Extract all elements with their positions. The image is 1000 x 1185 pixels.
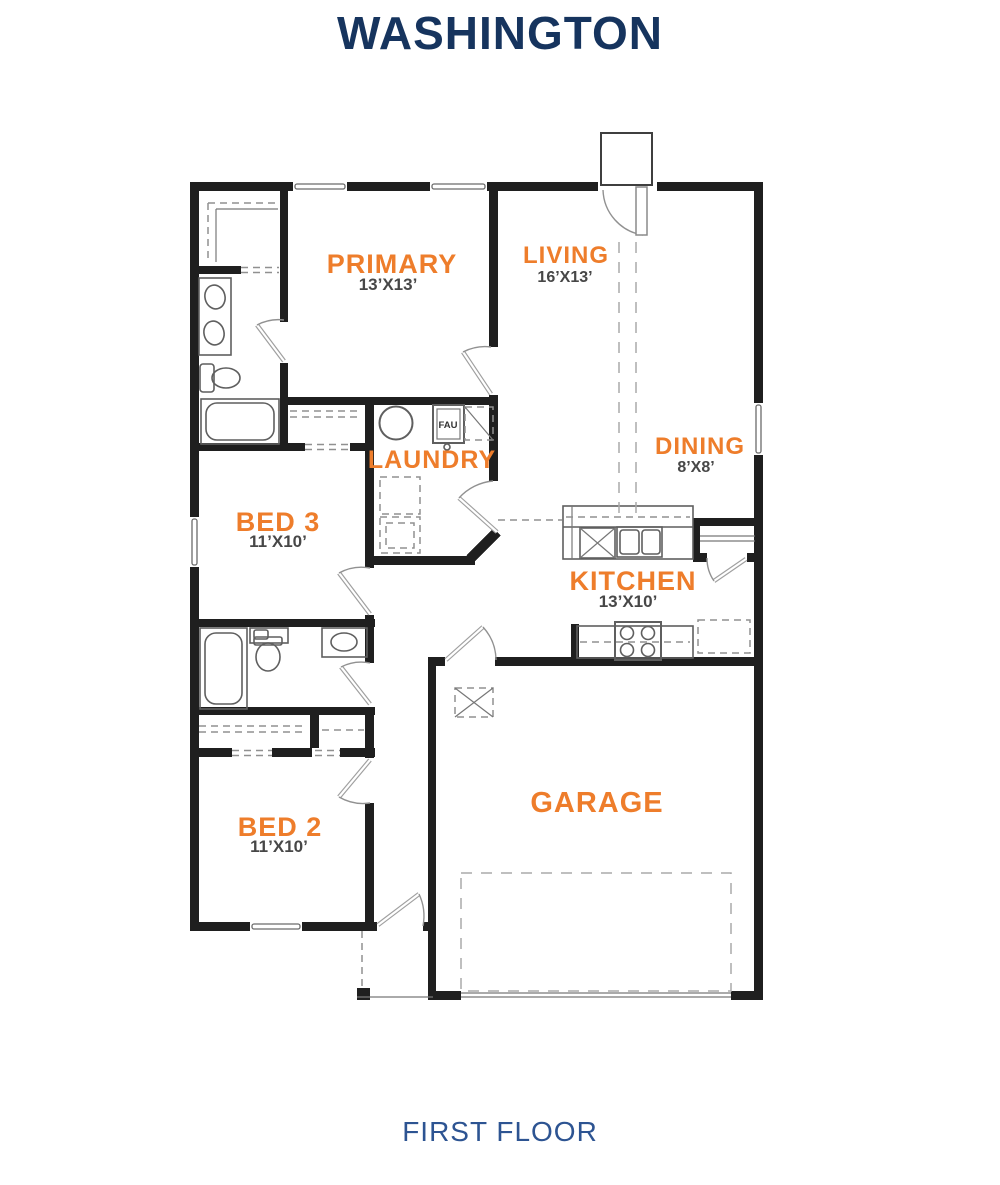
burner	[642, 644, 655, 657]
laundry-door	[459, 481, 497, 532]
wall-segment	[470, 532, 497, 559]
room-dims-bed3: 11’X10’	[249, 532, 307, 551]
wall-segment	[280, 191, 288, 322]
garage-fixtures	[357, 688, 731, 997]
primary-entry-door	[463, 347, 491, 394]
room-dims-kitchen: 13’X10’	[599, 592, 658, 611]
floor-label: FIRST FLOOR	[0, 1116, 1000, 1148]
wall-segment	[365, 556, 475, 565]
sink-basin	[642, 530, 660, 554]
wall-segment	[190, 619, 375, 627]
room-dims-living: 16’X13’	[537, 269, 592, 286]
front-entry	[598, 133, 657, 235]
burner	[621, 627, 634, 640]
wall-segment	[428, 657, 436, 1000]
primary-bath-fixtures	[199, 278, 279, 444]
bed2-door	[339, 758, 374, 803]
bed3-window	[190, 517, 199, 567]
window-slab	[252, 924, 300, 929]
entry-path	[619, 242, 636, 516]
wall-segment	[489, 191, 498, 347]
pantry-door	[707, 558, 746, 581]
bed2-window	[250, 922, 302, 931]
wall-segment	[350, 443, 367, 451]
stoop-corner-block	[357, 988, 370, 1000]
wall-segment	[754, 182, 763, 1000]
window-slab	[432, 184, 485, 189]
room-dims-primary: 13’X13’	[359, 275, 418, 294]
bath2-door	[341, 662, 374, 707]
window-slab	[192, 519, 197, 565]
wall-segment	[199, 266, 241, 274]
refrigerator-space	[698, 620, 750, 653]
pantry-wall	[693, 518, 763, 526]
wall-segment	[280, 363, 288, 451]
sink	[201, 319, 226, 347]
room-label-garage: GARAGE	[530, 787, 663, 819]
wall-segment	[280, 397, 495, 405]
bathtub-inner	[206, 403, 274, 440]
sink-basin	[620, 530, 639, 554]
room-label-laundry: LAUNDRY	[368, 446, 496, 474]
wall-segment	[310, 715, 319, 748]
wall-segment	[272, 748, 312, 757]
room-dims-bed2: 11’X10’	[250, 837, 308, 856]
primary-window-1	[293, 182, 347, 191]
toilet-bowl	[212, 368, 240, 388]
water-heater	[380, 407, 413, 440]
vanity	[199, 278, 231, 355]
window-slab	[295, 184, 345, 189]
dining-window	[754, 403, 763, 455]
island-counter	[563, 506, 693, 559]
floor-plan-drawing: PRIMARY 13’X13’ LIVING 16’X13’ LAUNDRY D…	[0, 0, 1000, 1185]
bed3-door	[339, 567, 374, 615]
attic-access-diagonal	[465, 407, 493, 440]
bathtub	[200, 628, 247, 709]
wall-segment	[190, 748, 232, 757]
bathtub	[201, 399, 279, 444]
garage-door-opening	[461, 991, 731, 1000]
bathtub-inner	[205, 633, 242, 704]
burner	[621, 644, 634, 657]
room-dims-dining: 8’X8’	[677, 459, 714, 476]
fau-label: FAU	[439, 420, 458, 431]
primary-closet	[208, 203, 279, 273]
sink	[202, 283, 227, 311]
pantry-wall	[747, 553, 763, 562]
wall-segment	[340, 748, 375, 757]
floor-plan-page: WASHINGTON	[0, 0, 1000, 1185]
room-label-dining: DINING	[655, 433, 745, 460]
pantry-wall	[693, 553, 707, 562]
burner	[642, 627, 655, 640]
front-door-leaf	[636, 187, 647, 235]
dryer-space-inner	[386, 523, 414, 548]
laundry-fixtures	[380, 405, 494, 553]
sink	[331, 633, 357, 651]
back-door	[377, 894, 424, 931]
window-slab	[756, 405, 761, 453]
garage-entry-door	[445, 627, 496, 666]
room-label-living: LIVING	[523, 242, 609, 269]
porch	[601, 133, 652, 185]
driveway-outline	[461, 873, 731, 991]
washer-space	[380, 477, 420, 514]
primary-bath-door	[257, 320, 284, 361]
primary-window-2	[430, 182, 487, 191]
toilet-bowl	[256, 643, 280, 671]
